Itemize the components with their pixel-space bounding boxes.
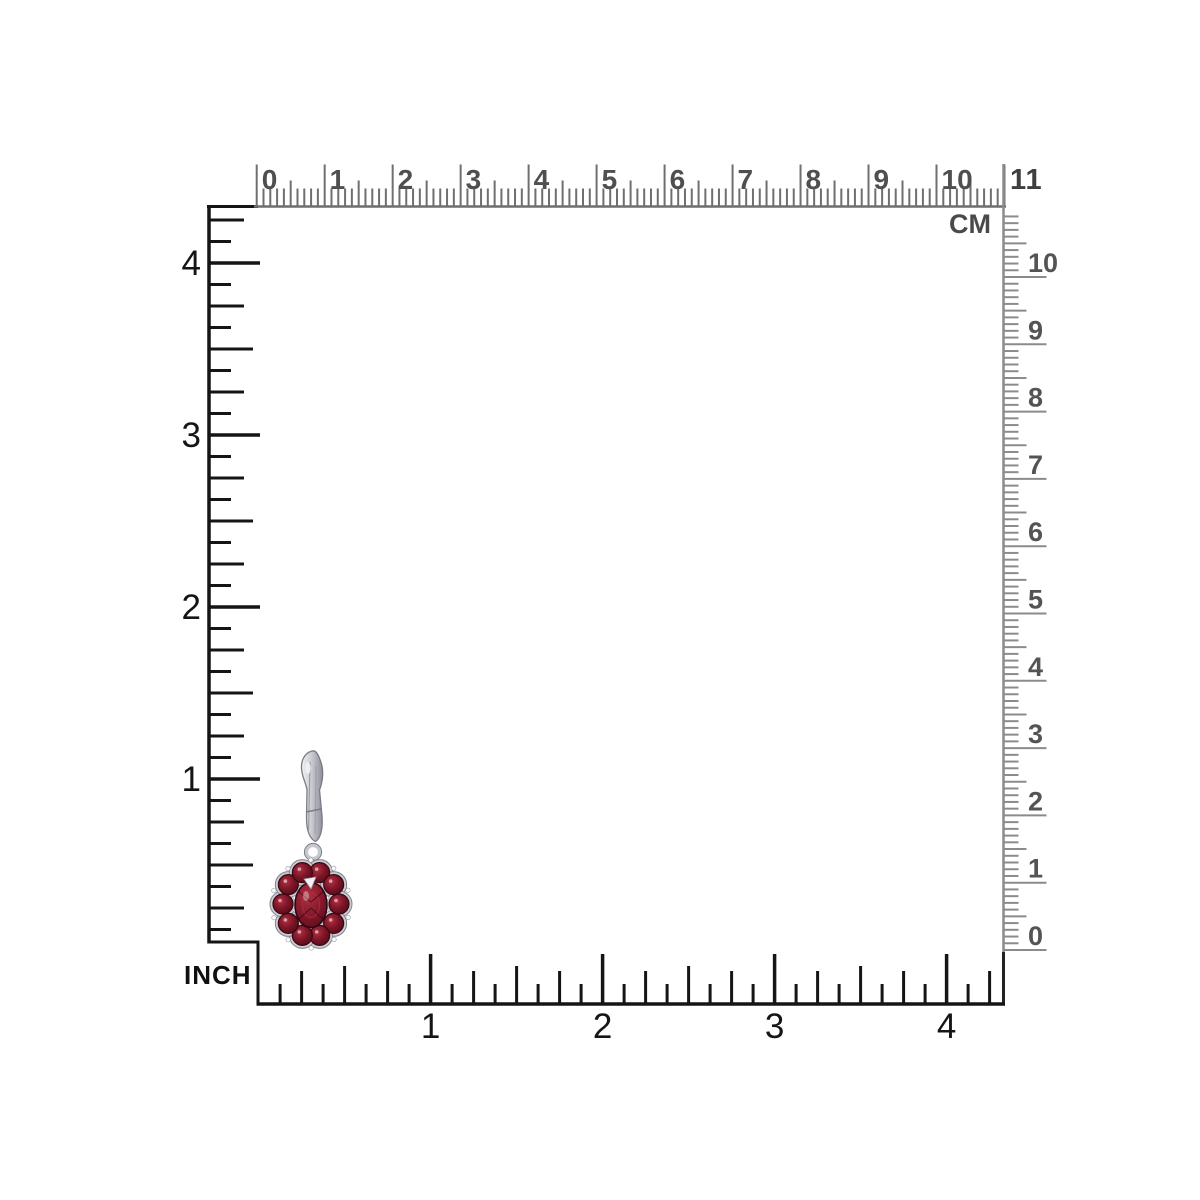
center-glint bbox=[303, 891, 309, 901]
stone-glint bbox=[298, 867, 302, 871]
cm-right-number: 5 bbox=[1028, 585, 1043, 615]
cm-top-number: 0 bbox=[262, 164, 278, 195]
cm-top-number: 7 bbox=[738, 164, 754, 195]
inch-left-number: 3 bbox=[182, 416, 201, 455]
size-chart-canvas: 01234567891010987654321043211234Sterling… bbox=[0, 0, 1200, 1200]
cm-right-number: 4 bbox=[1028, 652, 1043, 682]
inch-bottom-number: 2 bbox=[593, 1007, 612, 1046]
cm-right-number: 7 bbox=[1028, 450, 1043, 480]
stone-glint bbox=[329, 879, 333, 883]
inch-left-number: 2 bbox=[182, 588, 201, 627]
cm-right-number: 8 bbox=[1028, 383, 1043, 413]
prong-dot bbox=[272, 888, 276, 892]
cm-top-number: 3 bbox=[466, 164, 482, 195]
right-cm-ruler: 109876543210 bbox=[1003, 164, 1058, 1006]
stone-glint bbox=[284, 918, 288, 922]
stone-glint bbox=[278, 899, 282, 903]
cm-right-number: 9 bbox=[1028, 315, 1043, 345]
cm-top-number: 1 bbox=[330, 164, 346, 195]
bottom-inch-ruler: 1234 bbox=[257, 954, 1006, 1046]
cm-corner-number: 11 bbox=[1010, 166, 1043, 195]
cm-right-number: 3 bbox=[1028, 719, 1043, 749]
leverback-highlight bbox=[306, 762, 311, 774]
top-cm-ruler: 012345678910 bbox=[207, 164, 1006, 207]
inch-unit-label: INCH bbox=[184, 962, 252, 988]
prong-dot bbox=[346, 915, 350, 919]
cm-unit-label: CM bbox=[949, 211, 991, 238]
prong-dot bbox=[272, 916, 276, 920]
garnet-stone bbox=[329, 894, 349, 914]
prong-dot bbox=[346, 888, 350, 892]
prong-dot bbox=[332, 937, 336, 941]
stone-glint bbox=[298, 930, 302, 934]
inch-left-number: 1 bbox=[182, 760, 201, 799]
cm-right-number: 0 bbox=[1028, 921, 1043, 951]
stone-glint bbox=[315, 867, 319, 871]
cm-top-number: 10 bbox=[942, 164, 973, 195]
cm-top-number: 6 bbox=[670, 164, 686, 195]
cm-top-number: 4 bbox=[534, 164, 550, 195]
stone-glint bbox=[334, 899, 338, 903]
prong-dot bbox=[286, 866, 290, 870]
cm-right-number: 6 bbox=[1028, 517, 1043, 547]
cm-right-number: 10 bbox=[1028, 248, 1058, 278]
left-inch-ruler: 4321 bbox=[182, 205, 260, 1004]
prong-dot bbox=[332, 866, 336, 870]
cm-right-number: 2 bbox=[1028, 786, 1043, 816]
garnet-earring: Sterling silver leverback drop earring w… bbox=[270, 751, 352, 950]
leverback-wire bbox=[301, 751, 322, 842]
prong-dot bbox=[286, 938, 290, 942]
cm-top-number: 2 bbox=[398, 164, 414, 195]
prong-dot bbox=[309, 858, 313, 862]
garnet-stone bbox=[278, 913, 298, 933]
stone-glint bbox=[315, 930, 319, 934]
inch-bottom-number: 4 bbox=[937, 1007, 956, 1046]
prong-dot bbox=[309, 946, 313, 950]
stone-glint bbox=[329, 918, 333, 922]
garnet-stone bbox=[324, 875, 344, 895]
inch-bottom-number: 1 bbox=[421, 1007, 440, 1046]
cm-top-number: 8 bbox=[806, 164, 822, 195]
cm-right-number: 1 bbox=[1028, 854, 1043, 884]
stone-glint bbox=[284, 879, 288, 883]
inch-left-number: 4 bbox=[182, 244, 201, 283]
garnet-stone bbox=[273, 894, 293, 914]
cm-top-number: 5 bbox=[602, 164, 618, 195]
inch-bottom-number: 3 bbox=[765, 1007, 784, 1046]
cm-top-number: 9 bbox=[874, 164, 890, 195]
connector-ring bbox=[307, 846, 320, 859]
